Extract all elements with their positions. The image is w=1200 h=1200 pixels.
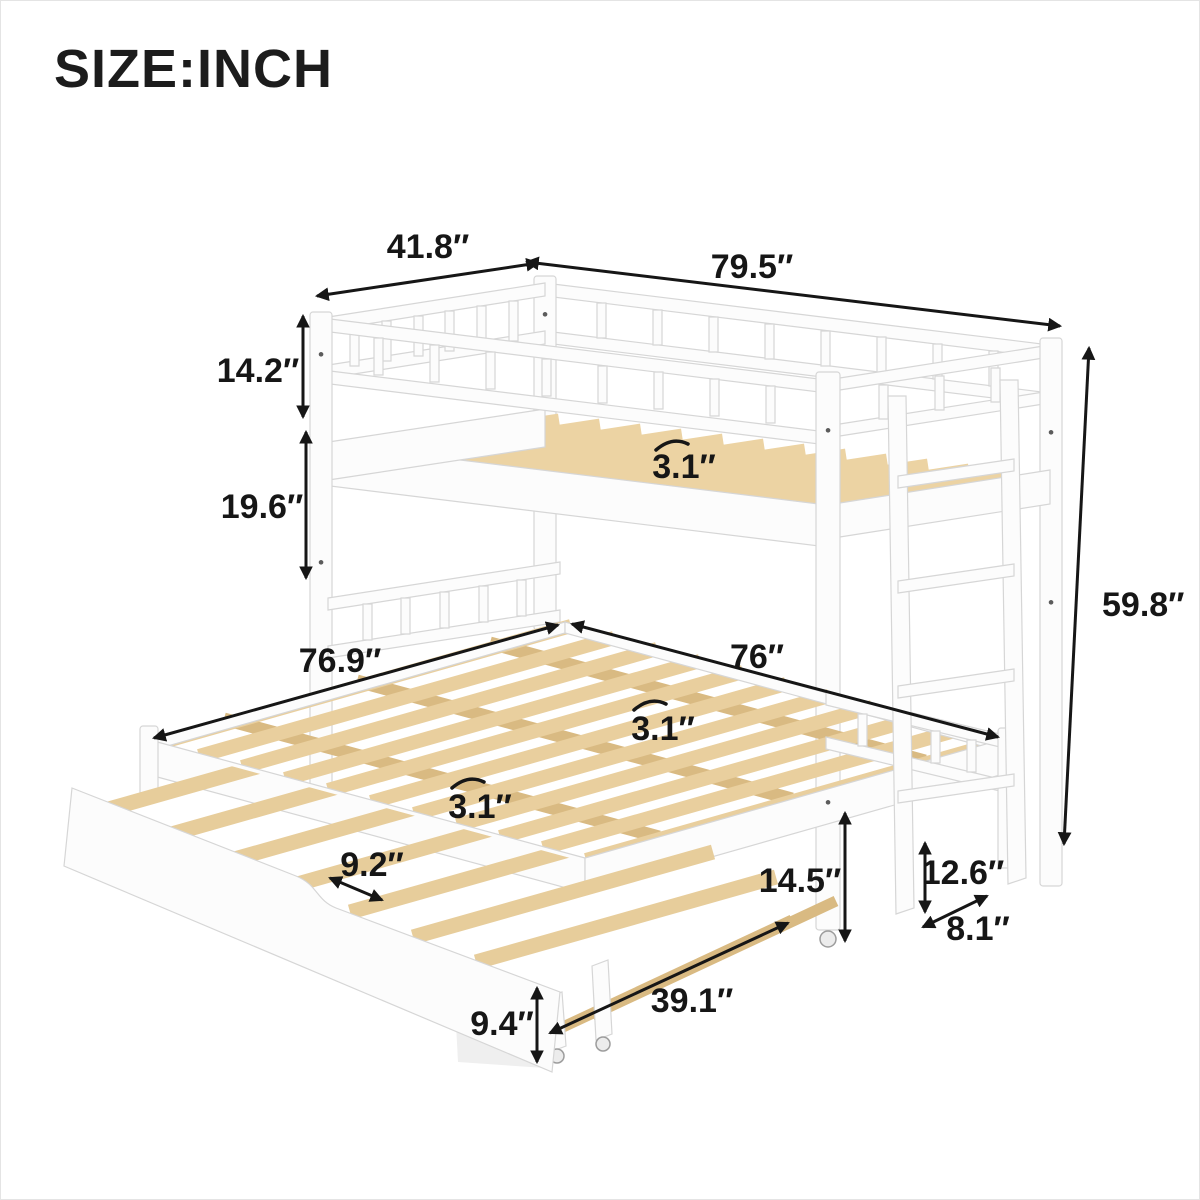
dim-pullout-length-label: 76″	[730, 638, 784, 676]
ladder-rung	[898, 669, 1014, 698]
dim-pullout-slat-gap-front-label: 3.1″	[448, 788, 512, 826]
bed-illustration: 41.8″ 79.5″ 14.2″ 19.6″ 3.1″ 76.9″ 76″ 3…	[0, 0, 1200, 1200]
dim-trundle-height-label: 9.4″	[470, 1005, 534, 1043]
ladder-rung	[898, 564, 1014, 593]
dim-overall-height-arrow	[1064, 348, 1089, 844]
dim-upper-slat-gap-label: 3.1″	[652, 448, 716, 486]
dim-pullout-width-label: 76.9″	[299, 642, 381, 680]
dim-guardrail-height-label: 14.2″	[217, 352, 299, 390]
dim-upper-length-label: 79.5″	[711, 248, 793, 286]
dim-bunk-clearance-label: 19.6″	[221, 488, 303, 526]
dim-rear-leg-height-label: 12.6″	[922, 854, 1004, 892]
upper-rear-right-post	[1040, 338, 1062, 886]
product-dimension-diagram: SIZE:INCH	[0, 0, 1200, 1200]
dim-trundle-rail-length-label: 39.1″	[651, 982, 733, 1020]
dim-overall-height-label: 59.8″	[1102, 586, 1184, 624]
dim-leg-depth-label: 8.1″	[946, 910, 1010, 948]
dim-upper-width-label: 41.8″	[387, 228, 469, 266]
caster-wheel	[596, 1037, 610, 1051]
dim-underbed-clearance-label: 14.5″	[759, 862, 841, 900]
upper-front-right-post	[816, 372, 840, 930]
dim-trundle-slat-gap-label: 9.2″	[340, 846, 404, 884]
trundle-support-leg	[592, 960, 612, 1040]
dim-pullout-slat-gap-label: 3.1″	[631, 710, 695, 748]
caster-wheel	[820, 931, 836, 947]
